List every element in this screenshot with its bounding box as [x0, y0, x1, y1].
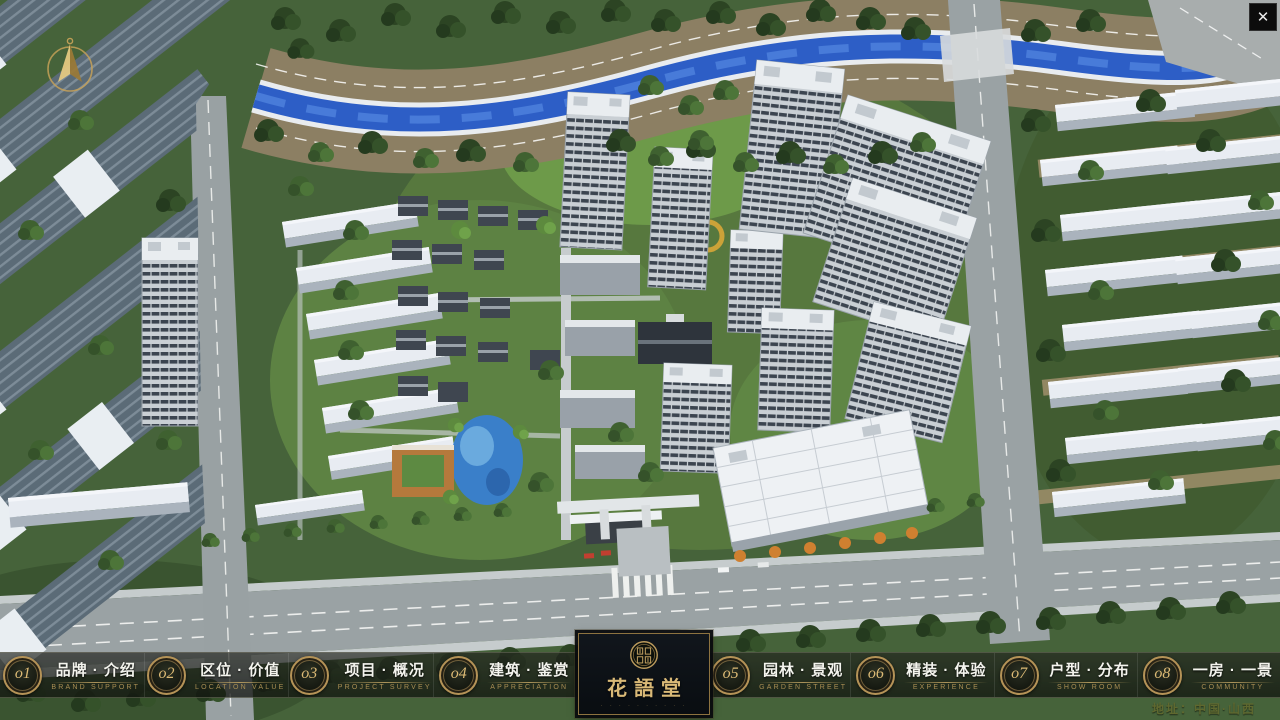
menu-label-zh: 区位 · 价值	[200, 659, 280, 680]
menu-label-zh: 一房 · 一景	[1193, 659, 1273, 680]
menu-label-zh: 建筑 · 鉴赏	[489, 659, 569, 680]
project-logo[interactable]: 花語堂 · · · · · · · · · ·	[578, 633, 710, 715]
menu-group-left: o1 品牌 · 介绍 BRAND SUPPORT o2 区位 · 价值 LOCA…	[0, 653, 578, 697]
menu-label-en: LOCATION VALUE	[195, 684, 285, 691]
gold-divider	[338, 682, 432, 683]
menu-item-room-view[interactable]: o8 一房 · 一景 COMMUNITY	[1138, 653, 1280, 697]
gold-divider	[904, 682, 988, 683]
medallion-icon: o6	[856, 656, 895, 695]
medallion-icon: o1	[3, 656, 42, 695]
gold-divider	[759, 682, 847, 683]
menu-group-right: o5 园林 · 景观 GARDEN STREET o6 精装 · 体验 EXPE…	[708, 653, 1280, 697]
menu-item-interior-experience[interactable]: o6 精装 · 体验 EXPERIENCE	[851, 653, 994, 697]
gold-divider	[195, 682, 285, 683]
medallion-icon: o8	[1143, 656, 1182, 695]
menu-label-en: COMMUNITY	[1201, 684, 1264, 691]
project-address: 地址：中国·山西	[1152, 700, 1256, 717]
medallion-icon: o2	[147, 656, 186, 695]
logo-caption: · · · · · · · · · ·	[601, 703, 687, 709]
menu-label-zh: 项目 · 概况	[345, 659, 425, 680]
menu-item-location-value[interactable]: o2 区位 · 价值 LOCATION VALUE	[145, 653, 290, 697]
menu-label-en: PROJECT SURVEY	[338, 684, 432, 691]
close-button[interactable]: ✕	[1249, 3, 1277, 31]
menu-item-project-survey[interactable]: o3 项目 · 概况 PROJECT SURVEY	[289, 653, 434, 697]
medallion-icon: o5	[711, 656, 750, 695]
medallion-icon: o3	[290, 656, 329, 695]
menu-item-brand-intro[interactable]: o1 品牌 · 介绍 BRAND SUPPORT	[0, 653, 145, 697]
menu-label-en: APPRECIATION	[490, 684, 568, 691]
menu-label-en: GARDEN STREET	[759, 684, 847, 691]
seal-emblem-icon	[629, 640, 659, 670]
compass-north-icon	[40, 32, 100, 98]
garden-building	[392, 445, 454, 497]
menu-label-zh: 精装 · 体验	[906, 659, 986, 680]
menu-item-unit-distribution[interactable]: o7 户型 · 分布 SHOW ROOM	[995, 653, 1138, 697]
menu-label-en: EXPERIENCE	[913, 684, 980, 691]
menu-item-garden-landscape[interactable]: o5 园林 · 景观 GARDEN STREET	[708, 653, 851, 697]
tower-west	[142, 238, 198, 426]
menu-label-zh: 户型 · 分布	[1049, 659, 1129, 680]
menu-item-architecture[interactable]: o4 建筑 · 鉴赏 APPRECIATION	[434, 653, 579, 697]
menu-label-zh: 园林 · 景观	[763, 659, 843, 680]
gold-divider	[51, 682, 140, 683]
menu-label-en: BRAND SUPPORT	[51, 684, 140, 691]
aerial-masterplan-render	[0, 0, 1280, 720]
sales-presentation-screen: ✕ o1 品牌 · 介绍 BRAND SUPPORT o2 区位 · 价值	[0, 0, 1280, 720]
medallion-icon: o7	[1000, 656, 1039, 695]
medallion-icon: o4	[439, 656, 478, 695]
gold-divider	[1191, 682, 1275, 683]
menu-label-en: SHOW ROOM	[1057, 684, 1122, 691]
menu-label-zh: 品牌 · 介绍	[56, 659, 136, 680]
logo-title: 花語堂	[600, 672, 688, 701]
gold-divider	[1048, 682, 1132, 683]
gold-divider	[487, 682, 571, 683]
